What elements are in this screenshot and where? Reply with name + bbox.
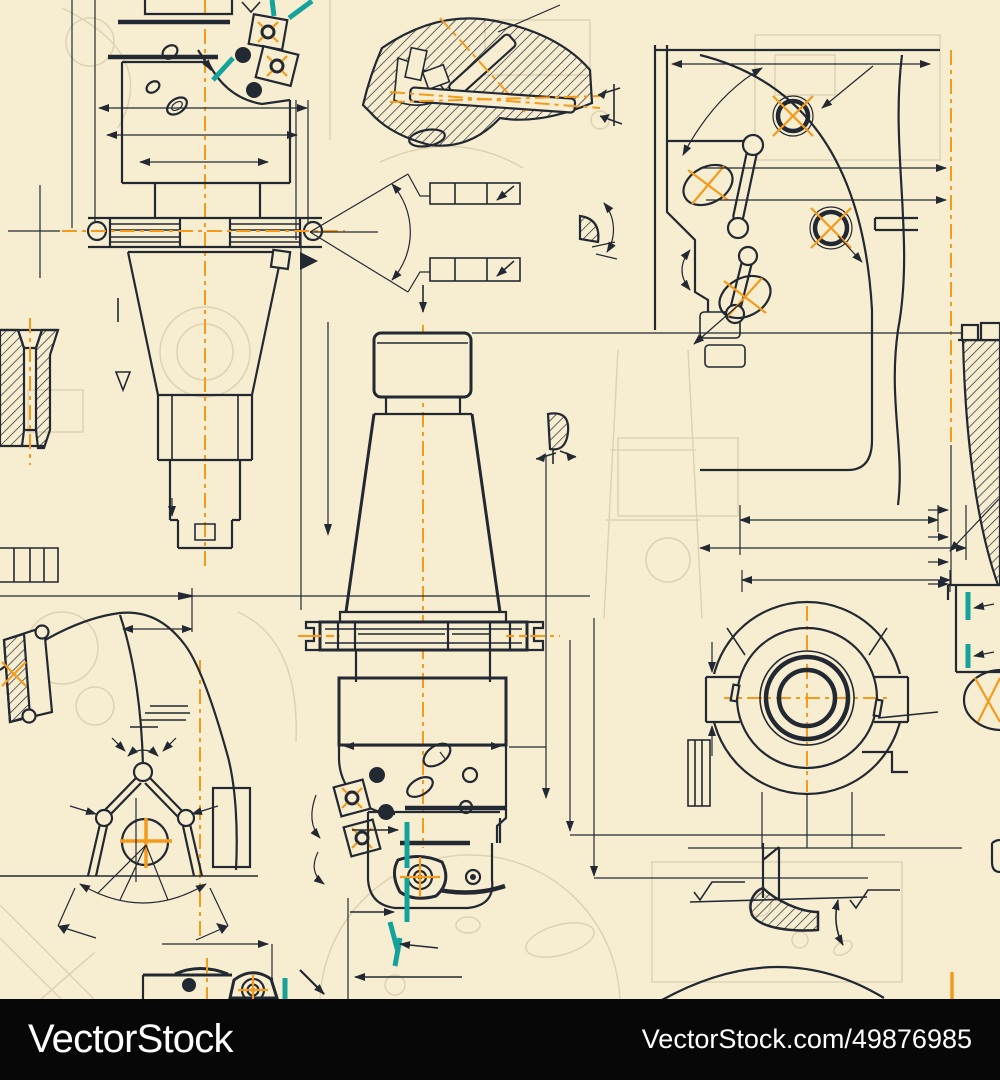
stock-image-page: VectorStock VectorStock.com/49876985	[0, 0, 1000, 1080]
watermark-bar: VectorStock VectorStock.com/49876985	[0, 999, 1000, 1080]
mill-cutter-top-left-view	[8, 0, 345, 610]
bushing-section-left	[0, 298, 130, 465]
flange-front-view	[688, 570, 962, 848]
watermark-url: VectorStock.com/49876985	[642, 1024, 972, 1055]
section-fragment-top-middle	[363, 5, 622, 149]
watermark-brand: VectorStock	[28, 1017, 233, 1062]
right-edge-cone-fragment	[948, 323, 1000, 730]
tool-holder-main-view	[298, 325, 962, 966]
blueprint-canvas	[0, 0, 1000, 1000]
insert-corner-section	[662, 840, 1000, 1000]
leader-fan-and-flags	[271, 174, 617, 312]
corner-head-detail-top-right	[655, 45, 1000, 585]
